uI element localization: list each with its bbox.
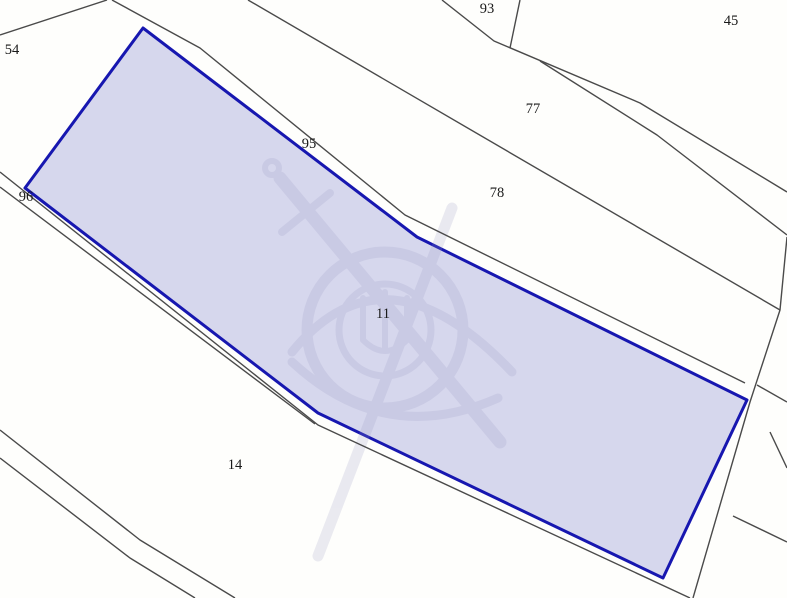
parcel-label-45: 45 [724, 13, 739, 29]
parcel-label-95: 95 [302, 136, 317, 152]
parcel-label-78: 78 [490, 185, 505, 201]
selected-parcel-number: 11 [376, 306, 390, 322]
parcel-label-77: 77 [526, 101, 541, 117]
cadastral-map-canvas[interactable]: 5493457795789614 11 [0, 0, 787, 598]
parcel-label-54: 54 [5, 42, 20, 58]
parcel-label-96: 96 [19, 189, 34, 205]
parcel-label-93: 93 [480, 1, 495, 17]
cadastral-map-view: 5493457795789614 11 [0, 0, 787, 598]
parcel-label-14: 14 [228, 457, 243, 473]
